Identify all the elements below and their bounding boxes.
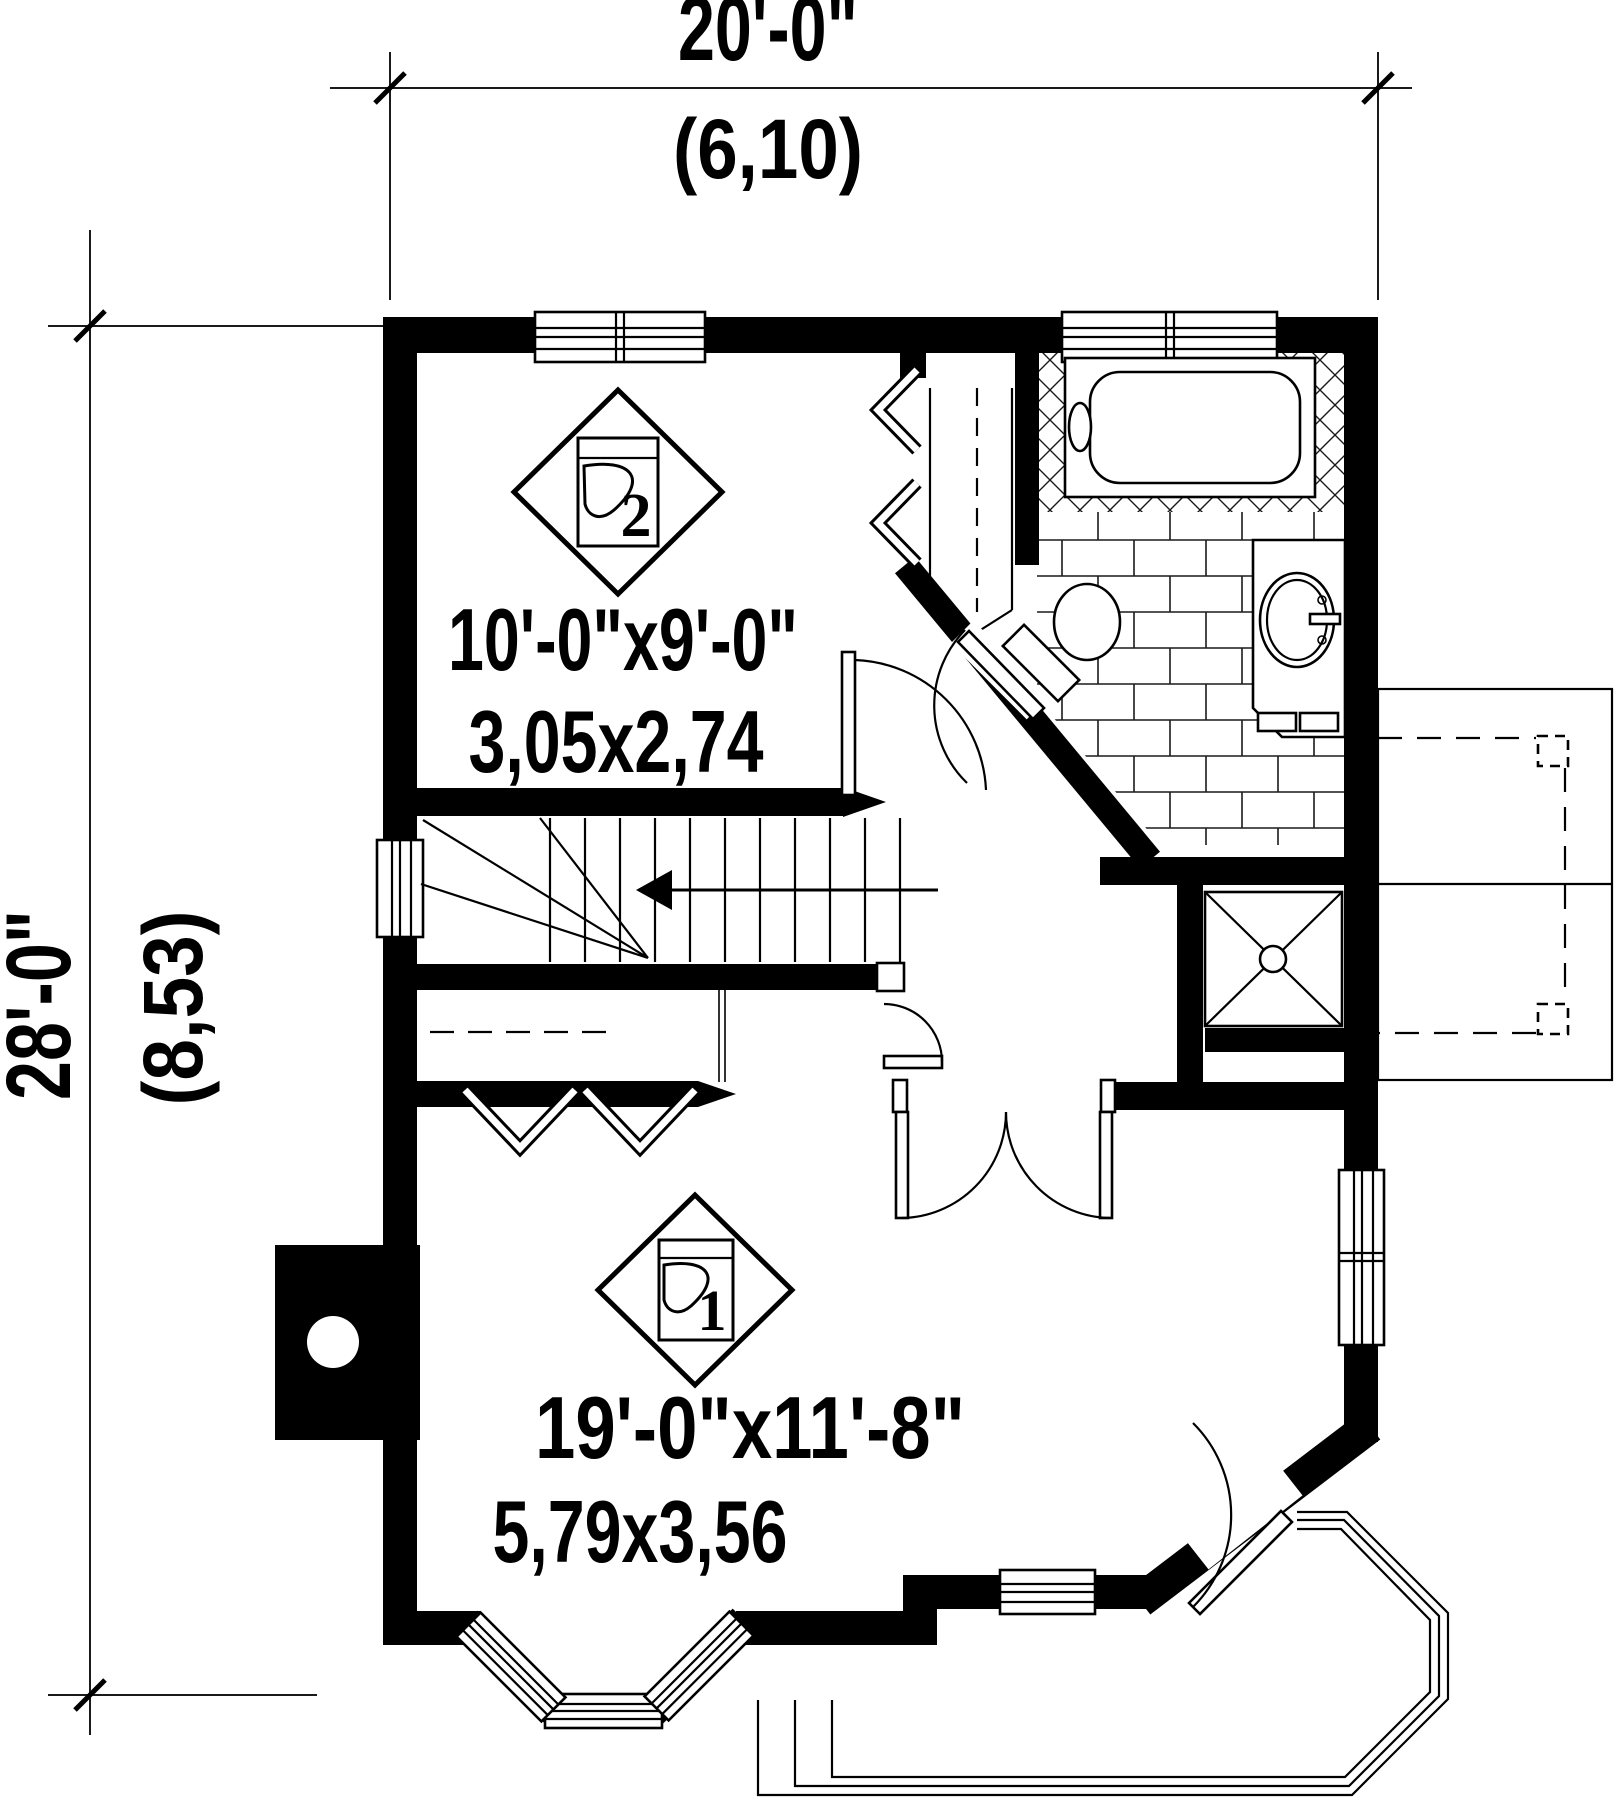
deck-post bbox=[1538, 1004, 1568, 1034]
left-dimension-imperial: 28'-0" bbox=[0, 910, 90, 1100]
room-2-size-imperial: 10'-0"x9'-0" bbox=[448, 590, 798, 689]
room-1-stamp-number: 1 bbox=[698, 1278, 727, 1343]
double-door-right-leaf bbox=[1100, 1112, 1112, 1218]
shower-icon bbox=[1205, 892, 1342, 1026]
left-dimension-metric: (8,53) bbox=[126, 911, 220, 1106]
room-2-stamp-number: 2 bbox=[621, 482, 652, 550]
living-bottom-window bbox=[1000, 1570, 1095, 1614]
floor-plan-page: 20'-0" (6,10) 28'-0" (8,53) bbox=[0, 0, 1621, 1800]
room-2-size-metric: 3,05x2,74 bbox=[469, 692, 764, 791]
chimney-flue-icon bbox=[307, 1316, 359, 1368]
living-right-window bbox=[1339, 1170, 1384, 1345]
room-1-size-imperial: 19'-0"x11'-8" bbox=[535, 1378, 965, 1477]
vanity bbox=[1253, 540, 1345, 737]
sink-faucet-icon bbox=[1310, 614, 1340, 624]
floor-plan-drawing: 20'-0" (6,10) 28'-0" (8,53) bbox=[0, 0, 1621, 1800]
tub-faucet-icon bbox=[1069, 403, 1091, 451]
top-dimension-imperial: 20'-0" bbox=[678, 0, 858, 80]
double-door-left-leaf bbox=[896, 1112, 908, 1218]
deck-post bbox=[1538, 736, 1568, 766]
door-jamb bbox=[877, 963, 904, 991]
closet-door-leaf bbox=[884, 1056, 942, 1068]
bathtub-icon bbox=[1065, 358, 1315, 497]
bedroom-window bbox=[535, 312, 705, 362]
door-jamb bbox=[1101, 1080, 1115, 1112]
bedroom-door-leaf bbox=[842, 652, 855, 795]
bathroom-window bbox=[1062, 312, 1277, 362]
stair-window bbox=[377, 840, 423, 937]
top-dimension-metric: (6,10) bbox=[673, 102, 863, 196]
room-1-size-metric: 5,79x3,56 bbox=[493, 1482, 788, 1581]
shower-drain-icon bbox=[1260, 946, 1286, 972]
chimney bbox=[275, 1245, 420, 1440]
door-jamb bbox=[893, 1080, 907, 1112]
